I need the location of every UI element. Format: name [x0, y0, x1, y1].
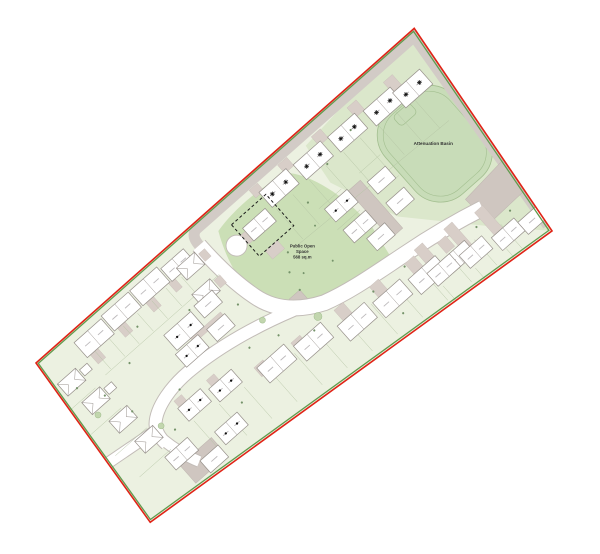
- site-plan-canvas: Attenuation Basin Public Open Space 568 …: [0, 0, 600, 554]
- public-open-space-label-line2: Space: [296, 249, 309, 254]
- attenuation-basin-label: Attenuation Basin: [414, 141, 453, 146]
- public-open-space-label-line1: Public Open: [290, 244, 315, 249]
- public-open-space-label-line3: 568 sq.m: [293, 255, 312, 260]
- site-plan-drawing: Attenuation Basin Public Open Space 568 …: [0, 0, 600, 554]
